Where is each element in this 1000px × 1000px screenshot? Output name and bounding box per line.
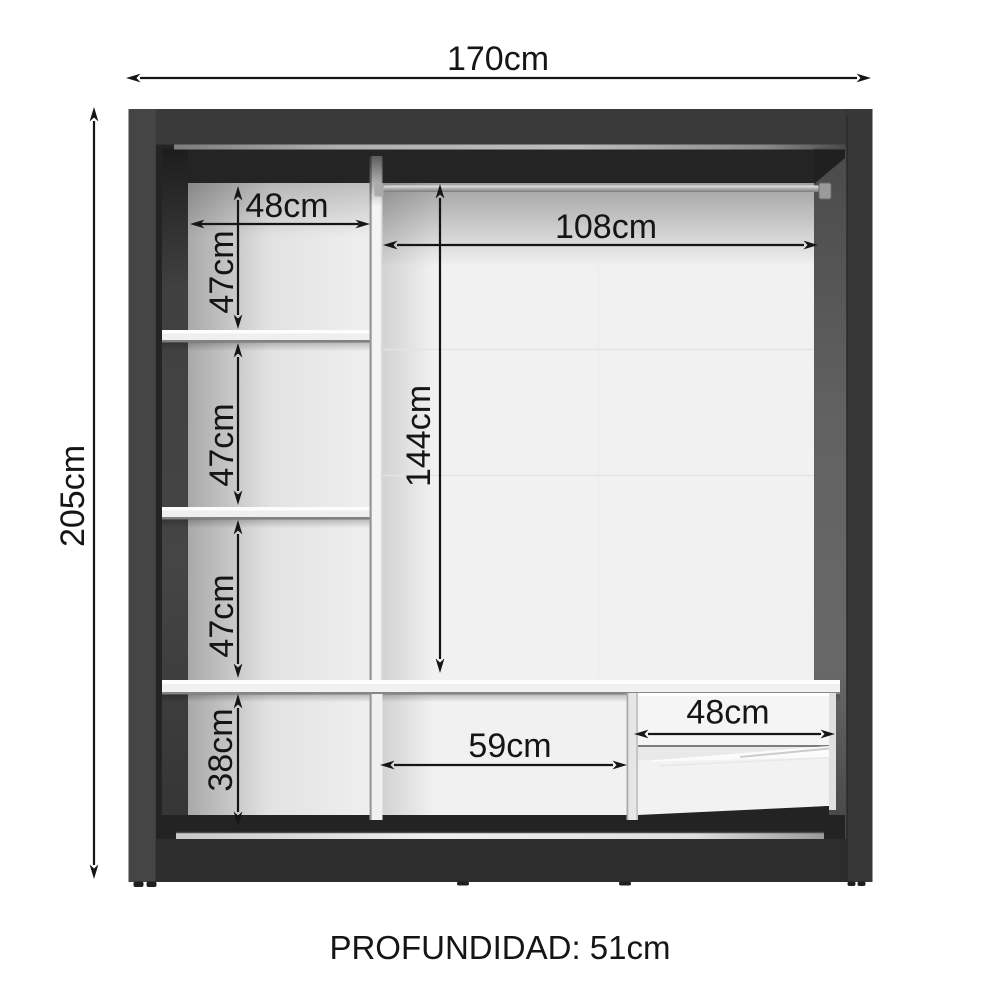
svg-text:205cm: 205cm xyxy=(54,445,92,547)
svg-text:47cm: 47cm xyxy=(203,574,241,657)
svg-text:47cm: 47cm xyxy=(203,230,241,313)
svg-text:48cm: 48cm xyxy=(686,694,769,732)
svg-text:48cm: 48cm xyxy=(245,187,328,225)
svg-text:PROFUNDIDAD: 51cm: PROFUNDIDAD: 51cm xyxy=(329,929,670,966)
svg-text:170cm: 170cm xyxy=(447,40,549,78)
svg-text:59cm: 59cm xyxy=(468,727,551,765)
svg-text:47cm: 47cm xyxy=(203,403,241,486)
svg-text:144cm: 144cm xyxy=(400,385,438,487)
svg-text:108cm: 108cm xyxy=(555,208,657,246)
svg-text:38cm: 38cm xyxy=(202,708,240,791)
